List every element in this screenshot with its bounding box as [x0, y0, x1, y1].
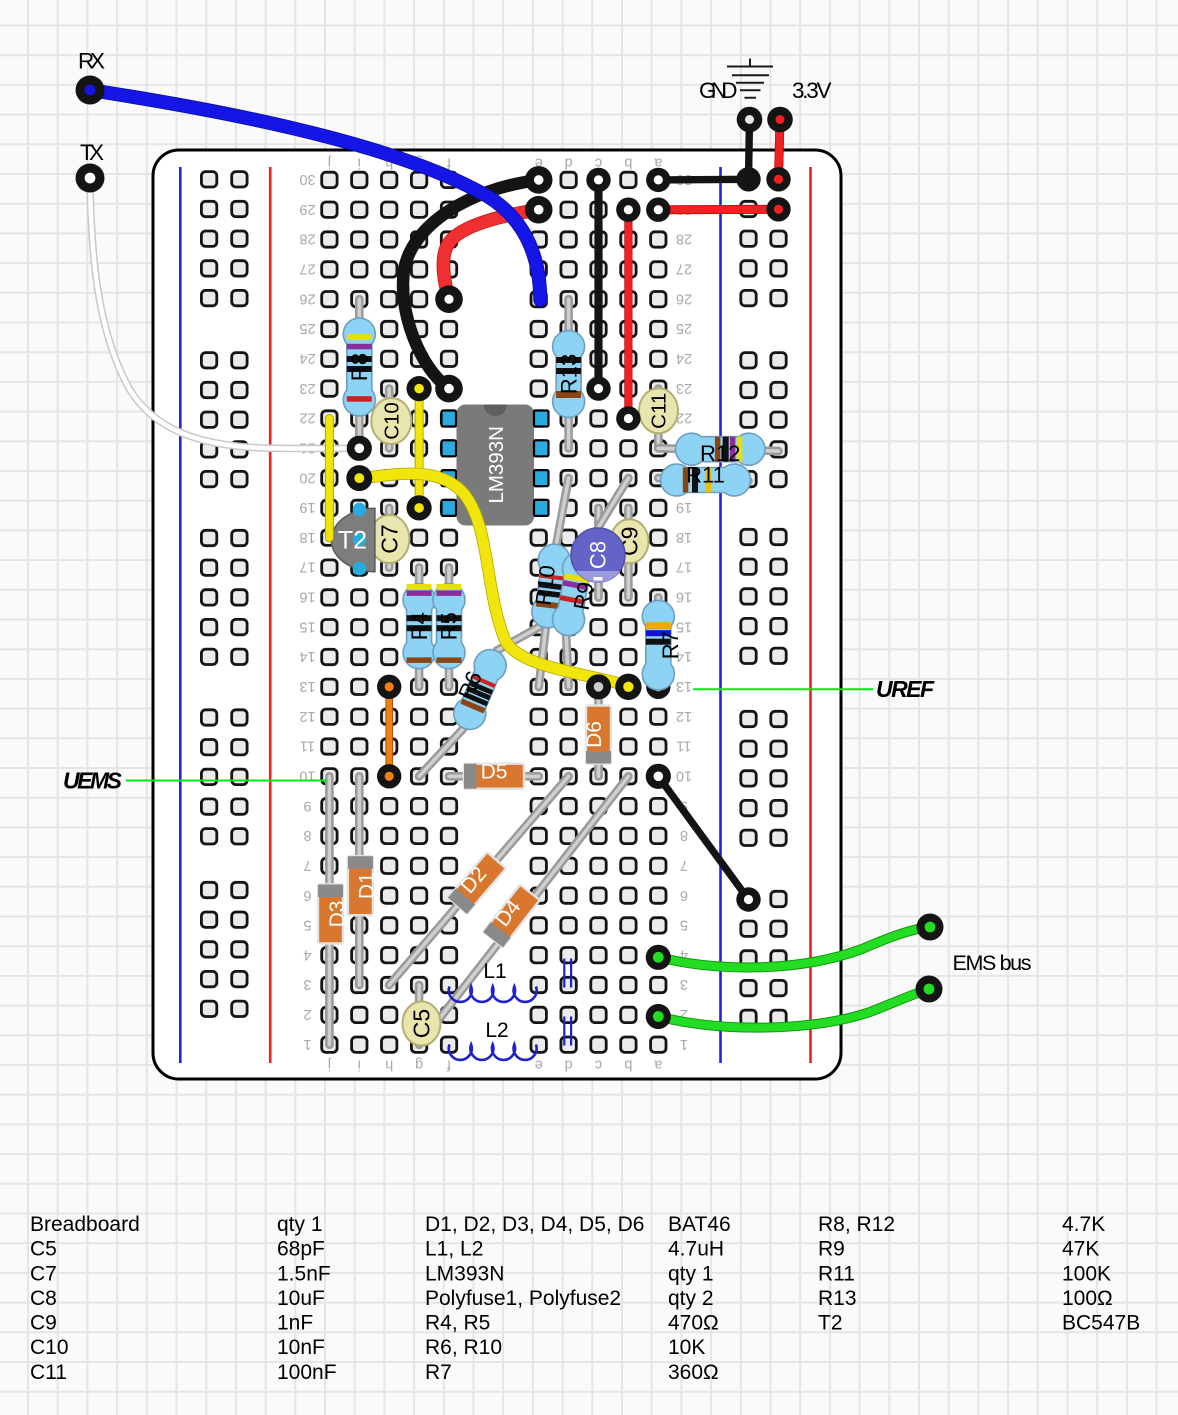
svg-text:C7: C7: [376, 524, 402, 553]
svg-text:j: j: [328, 1057, 332, 1073]
svg-text:R9: R9: [818, 1238, 845, 1261]
svg-text:24: 24: [299, 350, 315, 366]
svg-text:3.3V: 3.3V: [792, 78, 832, 103]
svg-text:R6, R10: R6, R10: [425, 1336, 502, 1359]
svg-text:18: 18: [676, 529, 692, 545]
svg-text:a: a: [653, 1057, 662, 1073]
svg-text:11: 11: [300, 738, 315, 754]
svg-text:D1, D2, D3, D4, D5, D6: D1, D2, D3, D4, D5, D6: [425, 1213, 644, 1236]
svg-text:g: g: [415, 1057, 423, 1073]
svg-text:12: 12: [299, 708, 315, 724]
svg-text:1: 1: [303, 1036, 311, 1052]
svg-text:C8: C8: [30, 1287, 57, 1310]
svg-text:16: 16: [676, 589, 692, 605]
svg-text:5: 5: [680, 917, 688, 933]
svg-text:Polyfuse1, Polyfuse2: Polyfuse1, Polyfuse2: [425, 1287, 621, 1310]
svg-text:17: 17: [676, 559, 692, 575]
svg-text:R13: R13: [818, 1287, 857, 1310]
svg-text:10nF: 10nF: [277, 1336, 325, 1359]
svg-text:5: 5: [303, 917, 311, 933]
svg-text:47K: 47K: [1062, 1238, 1099, 1261]
svg-text:11: 11: [676, 738, 691, 754]
svg-text:d: d: [565, 1057, 573, 1073]
svg-text:C5: C5: [409, 1009, 435, 1038]
svg-text:R4, R5: R4, R5: [425, 1312, 490, 1335]
svg-text:1: 1: [680, 1036, 688, 1052]
svg-text:19: 19: [676, 499, 692, 515]
svg-text:L1, L2: L1, L2: [425, 1238, 483, 1261]
svg-text:b: b: [624, 155, 632, 171]
svg-text:18: 18: [299, 529, 315, 545]
svg-text:GND: GND: [699, 78, 738, 103]
svg-text:100K: 100K: [1062, 1262, 1111, 1285]
svg-text:L1: L1: [483, 960, 506, 983]
svg-text:17: 17: [299, 559, 315, 575]
svg-text:j: j: [328, 155, 332, 171]
svg-text:23: 23: [676, 380, 692, 396]
svg-text:13: 13: [299, 678, 315, 694]
svg-text:10uF: 10uF: [277, 1287, 325, 1310]
svg-text:7: 7: [680, 857, 688, 873]
svg-text:1.5nF: 1.5nF: [277, 1262, 331, 1285]
svg-text:h: h: [385, 1057, 393, 1073]
svg-text:C11: C11: [648, 393, 671, 429]
svg-text:UEMS: UEMS: [63, 768, 123, 794]
svg-text:360Ω: 360Ω: [668, 1361, 719, 1384]
svg-text:LM393N: LM393N: [485, 426, 508, 504]
svg-text:29: 29: [299, 201, 315, 217]
svg-text:R9: R9: [569, 580, 599, 612]
svg-text:9: 9: [303, 797, 311, 813]
svg-text:10: 10: [676, 768, 692, 784]
svg-text:16: 16: [299, 589, 315, 605]
svg-text:12: 12: [676, 708, 692, 724]
svg-text:T2: T2: [818, 1312, 843, 1335]
svg-text:26: 26: [676, 290, 692, 306]
svg-text:10K: 10K: [668, 1336, 705, 1359]
svg-text:qty 1: qty 1: [277, 1213, 323, 1236]
svg-text:6: 6: [303, 887, 311, 903]
svg-text:d: d: [565, 155, 573, 171]
svg-text:4: 4: [303, 946, 311, 962]
svg-text:C9: C9: [30, 1312, 57, 1335]
svg-text:470Ω: 470Ω: [668, 1312, 719, 1335]
svg-text:R10: R10: [530, 564, 560, 607]
svg-text:qty 1: qty 1: [668, 1262, 714, 1285]
svg-text:Breadboard: Breadboard: [30, 1213, 140, 1236]
svg-text:i: i: [358, 1057, 361, 1073]
svg-text:25: 25: [676, 320, 692, 336]
svg-text:R8, R12: R8, R12: [818, 1213, 895, 1236]
svg-text:R13: R13: [556, 354, 581, 394]
svg-text:R7: R7: [658, 631, 683, 659]
svg-text:c: c: [595, 1057, 602, 1073]
svg-text:D5: D5: [481, 761, 508, 784]
svg-text:BAT46: BAT46: [668, 1213, 731, 1236]
svg-text:R4: R4: [407, 612, 432, 640]
svg-text:D3: D3: [326, 901, 349, 928]
svg-text:28: 28: [676, 231, 692, 247]
svg-text:27: 27: [299, 261, 315, 277]
svg-text:26: 26: [299, 290, 315, 306]
svg-text:i: i: [358, 155, 361, 171]
svg-text:4.7uH: 4.7uH: [668, 1238, 724, 1261]
svg-text:25: 25: [299, 320, 315, 336]
svg-text:27: 27: [676, 261, 692, 277]
svg-text:L2: L2: [485, 1019, 508, 1042]
svg-text:28: 28: [299, 231, 315, 247]
svg-text:15: 15: [299, 618, 315, 634]
svg-text:b: b: [624, 1057, 632, 1073]
svg-text:100nF: 100nF: [277, 1361, 337, 1384]
svg-text:2: 2: [303, 1006, 311, 1022]
svg-text:C10: C10: [381, 402, 404, 440]
svg-text:4.7K: 4.7K: [1062, 1213, 1105, 1236]
svg-text:100Ω: 100Ω: [1062, 1287, 1113, 1310]
svg-text:1nF: 1nF: [277, 1312, 313, 1335]
svg-text:D6: D6: [583, 721, 606, 748]
svg-text:C5: C5: [30, 1238, 57, 1261]
svg-text:e: e: [535, 1057, 543, 1073]
svg-text:BC547B: BC547B: [1062, 1312, 1140, 1335]
svg-text:C8: C8: [586, 541, 611, 569]
svg-text:R7: R7: [425, 1361, 452, 1384]
svg-text:RX: RX: [78, 49, 105, 74]
svg-text:D1: D1: [356, 872, 379, 899]
svg-text:T2: T2: [338, 527, 367, 555]
svg-text:R5: R5: [437, 612, 462, 640]
svg-text:8: 8: [303, 827, 311, 843]
svg-text:R8: R8: [347, 353, 372, 381]
svg-text:C11: C11: [30, 1361, 67, 1384]
svg-text:20: 20: [299, 469, 315, 485]
svg-text:13: 13: [676, 678, 692, 694]
svg-text:7: 7: [303, 857, 311, 873]
svg-text:EMS bus: EMS bus: [953, 951, 1032, 975]
svg-text:8: 8: [680, 827, 688, 843]
svg-text:14: 14: [299, 648, 315, 664]
svg-text:3: 3: [680, 976, 688, 992]
svg-text:24: 24: [676, 350, 692, 366]
svg-text:6: 6: [680, 887, 688, 903]
svg-text:19: 19: [299, 499, 315, 515]
svg-text:22: 22: [299, 410, 315, 426]
svg-text:23: 23: [299, 380, 315, 396]
svg-text:3: 3: [303, 976, 311, 992]
svg-text:C10: C10: [30, 1336, 69, 1359]
svg-text:R11: R11: [686, 463, 725, 488]
svg-text:R11: R11: [818, 1262, 855, 1285]
svg-text:TX: TX: [80, 140, 104, 165]
svg-text:68pF: 68pF: [277, 1238, 325, 1261]
svg-text:UREF: UREF: [876, 676, 935, 702]
svg-text:LM393N: LM393N: [425, 1262, 504, 1285]
svg-text:qty 2: qty 2: [668, 1287, 714, 1310]
svg-text:30: 30: [299, 171, 315, 187]
svg-text:C7: C7: [30, 1262, 57, 1285]
